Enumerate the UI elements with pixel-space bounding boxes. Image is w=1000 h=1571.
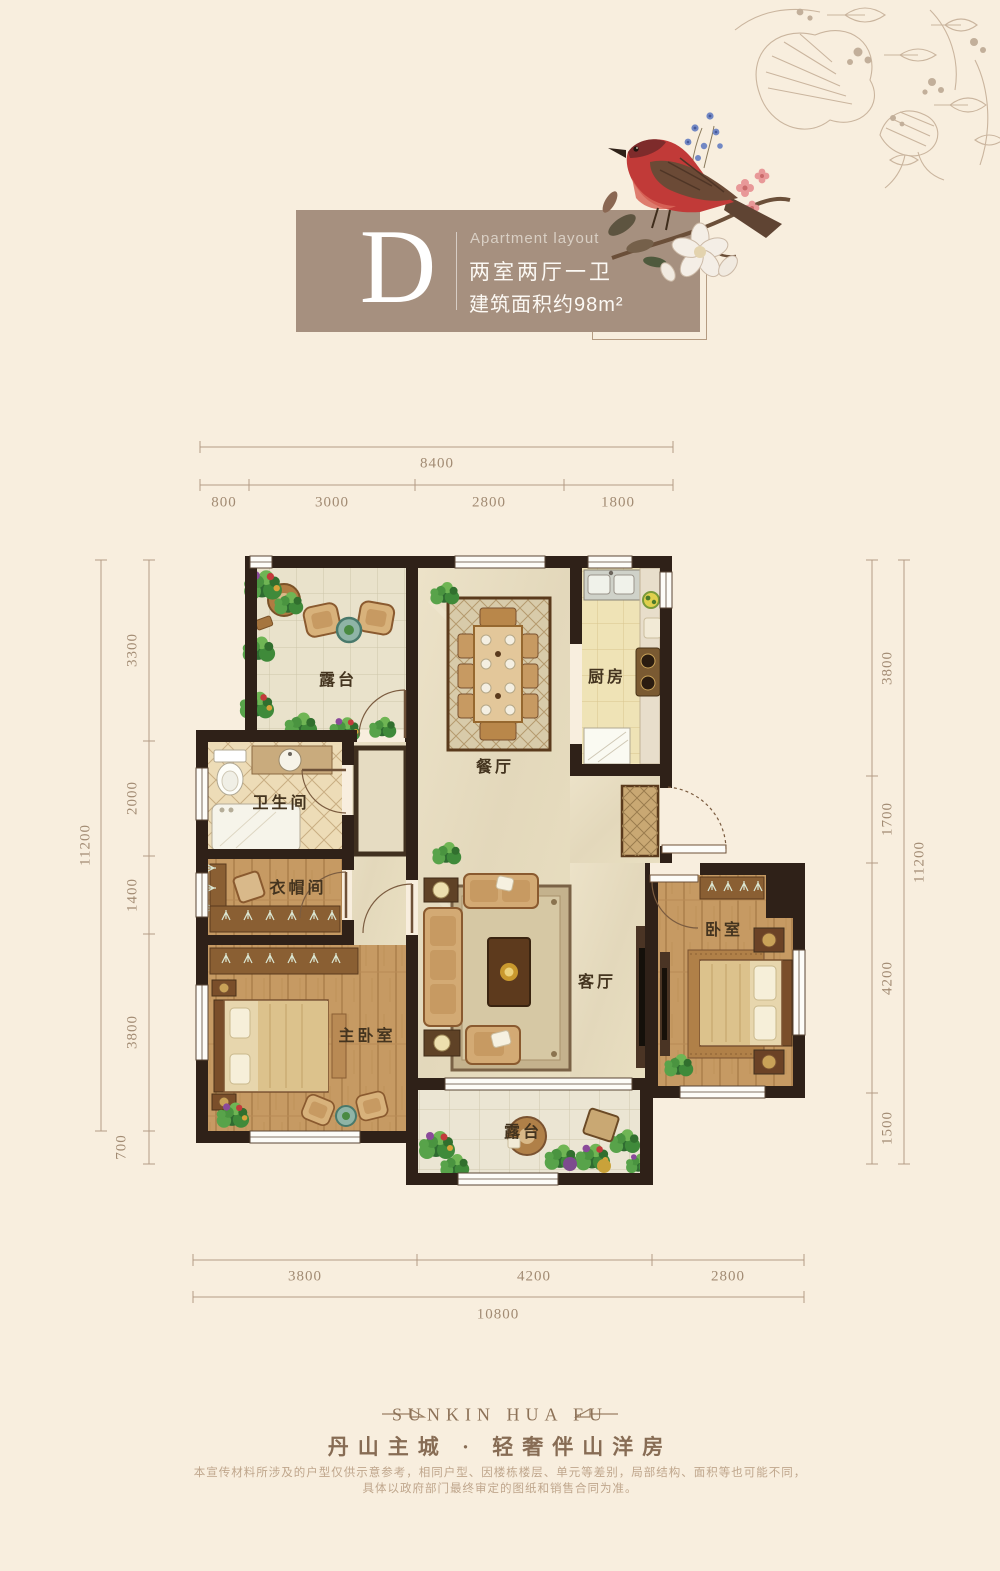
- window: [250, 556, 272, 568]
- dim-bottom-seg-0: 3800: [288, 1269, 322, 1286]
- dim-left-seg-4: 700: [114, 1134, 131, 1160]
- dim-top-total: 8400: [420, 456, 454, 473]
- brand-tagline: 丹山主城 · 轻奢伴山洋房: [328, 1431, 673, 1461]
- window: [455, 556, 545, 568]
- dim-top-seg-2: 2800: [472, 495, 506, 512]
- corner-floral-art: [735, 8, 1000, 188]
- dim-top-seg-1: 3000: [315, 495, 349, 512]
- dim-left-seg-2: 1400: [125, 878, 142, 912]
- dim-bottom-total: 10800: [477, 1307, 520, 1324]
- dim-right-seg-2: 4200: [880, 961, 897, 995]
- window: [196, 985, 208, 1060]
- dim-top-seg-0: 800: [211, 495, 237, 512]
- poster-page: D Apartment layout 两室两厅一卫 建筑面积约98m²: [0, 0, 1000, 1571]
- title-layout-type: 两室两厅一卫: [469, 256, 613, 286]
- dim-right-seg-0: 3800: [880, 651, 897, 685]
- room-label-bedroom: 卧室: [705, 916, 743, 940]
- dim-right-total: 11200: [912, 841, 929, 883]
- dim-left-seg-1: 2000: [125, 781, 142, 815]
- brand-name: SUNKIN HUA FU: [392, 1405, 608, 1426]
- disclaimer-line1: 本宣传材料所涉及的户型仅供示意参考，相同户型、因楼栋楼层、单元等差别，局部结构、…: [194, 1464, 807, 1480]
- hallway-closet: [356, 748, 406, 854]
- window: [588, 556, 632, 568]
- dim-left-seg-0: 3300: [125, 633, 142, 667]
- title-area: 建筑面积约98m²: [469, 288, 624, 317]
- dim-bottom-seg-2: 2800: [711, 1269, 745, 1286]
- dim-top-seg-3: 1800: [601, 495, 635, 512]
- disclaimer-line2: 具体以政府部门最终审定的图纸和销售合同为准。: [363, 1480, 638, 1496]
- dim-right-seg-1: 1700: [880, 802, 897, 836]
- room-label-dining: 餐厅: [476, 753, 514, 777]
- window: [458, 1173, 558, 1185]
- title-divider: [456, 232, 457, 310]
- plan-letter: D: [338, 213, 458, 321]
- dim-right-seg-3: 1500: [880, 1111, 897, 1145]
- dim-bottom-seg-1: 4200: [517, 1269, 551, 1286]
- room-label-kitchen: 厨房: [588, 663, 626, 687]
- door-entry: [662, 787, 726, 853]
- room-label-terrace-top: 露台: [319, 666, 357, 690]
- window: [250, 1131, 360, 1143]
- window: [660, 572, 672, 608]
- dim-left-seg-3: 3800: [125, 1015, 142, 1049]
- title-subtitle-en: Apartment layout: [470, 230, 599, 247]
- room-label-living: 客厅: [578, 968, 616, 992]
- window: [680, 1086, 765, 1098]
- dim-left-total: 11200: [78, 824, 95, 866]
- entry-cabinet: [622, 786, 658, 856]
- window: [793, 950, 805, 1035]
- room-label-terrace-bottom: 露台: [504, 1118, 542, 1142]
- room-label-master-bedroom: 主卧室: [338, 1022, 395, 1046]
- window: [445, 1078, 632, 1090]
- room-label-cloakroom: 衣帽间: [269, 874, 326, 898]
- room-label-bathroom: 卫生间: [252, 789, 309, 813]
- window: [196, 873, 208, 917]
- window: [196, 768, 208, 820]
